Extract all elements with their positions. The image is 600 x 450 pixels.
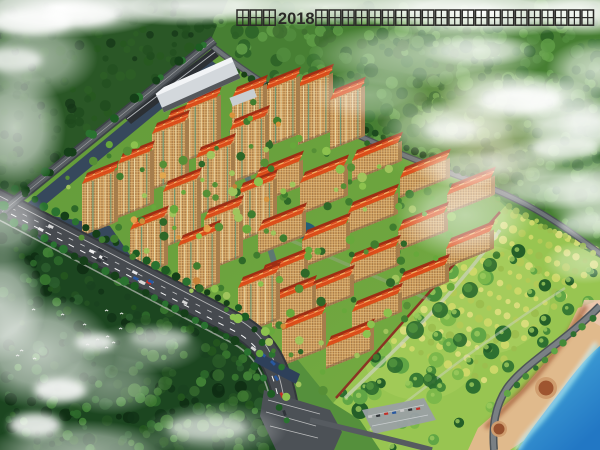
svg-text:2018: 2018 — [278, 10, 315, 28]
